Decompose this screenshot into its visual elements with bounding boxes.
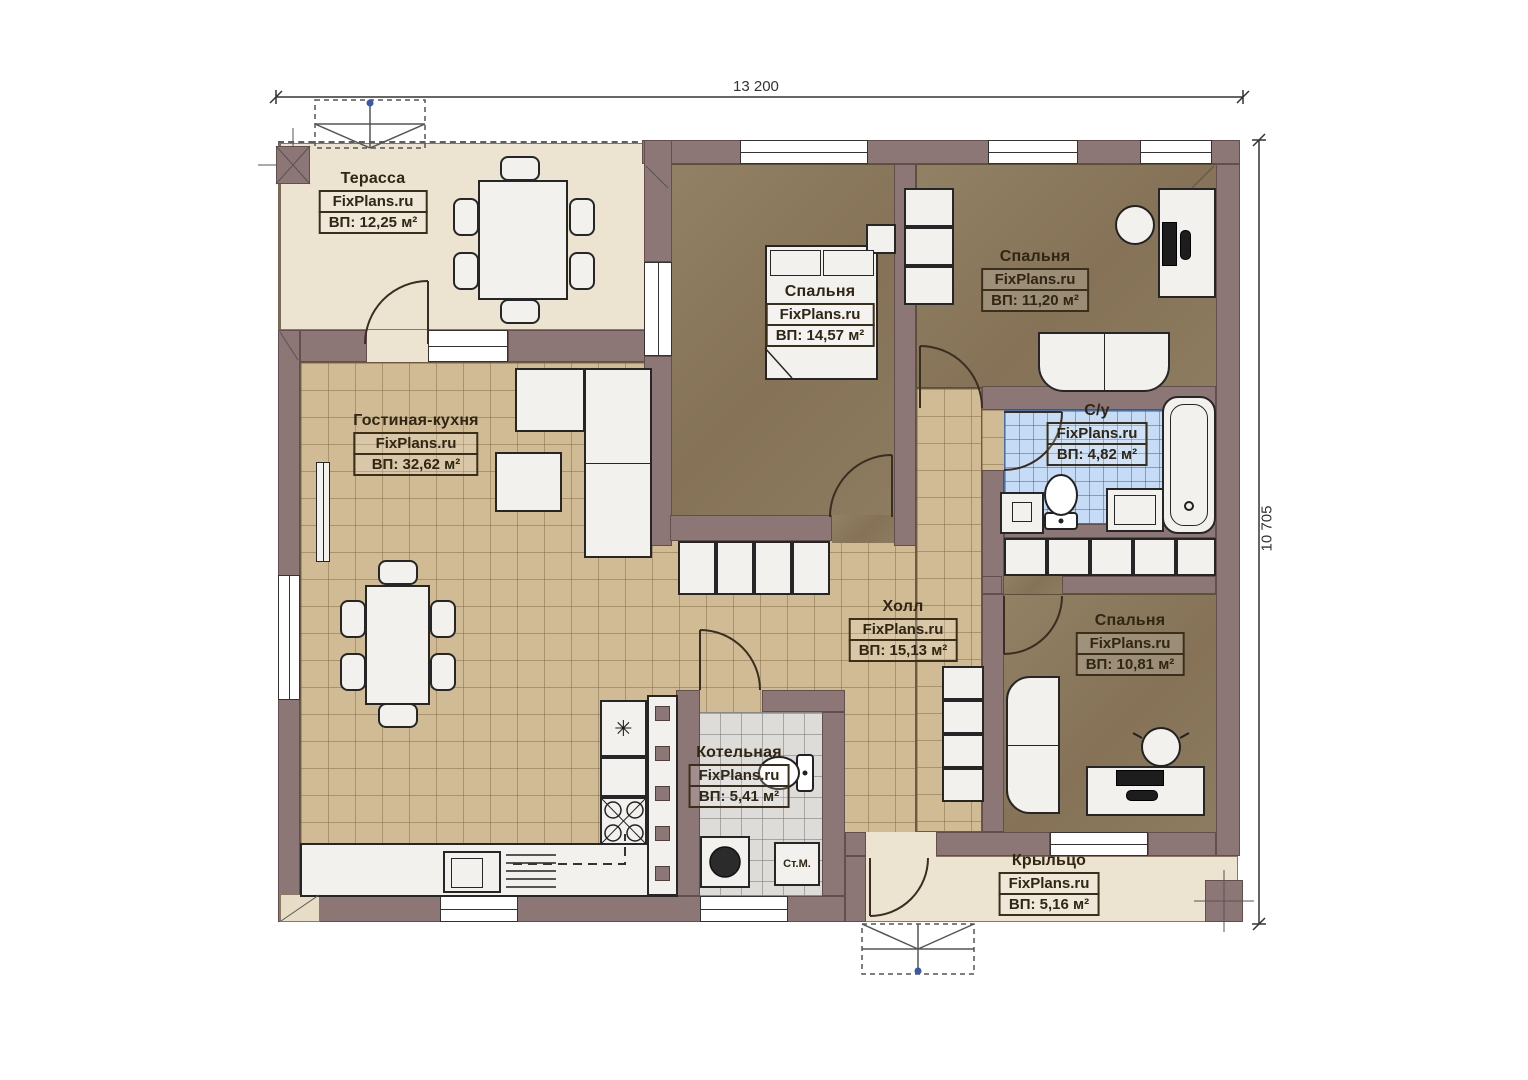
hall-closet-box [942,700,984,734]
watermark: FixPlans.ru [981,268,1089,291]
hall-closet-box [1176,538,1216,576]
computer-monitor [1162,222,1177,266]
window-bedroom2-top-1 [988,140,1078,164]
wall-bedroom3-left [982,594,1004,832]
living-chair [378,560,418,585]
radiator [316,462,330,562]
room-label-hall: Холл FixPlans.ru ВП: 15,13 м² [849,598,958,662]
porch-door-threshold [866,832,936,858]
living-chair [430,653,456,691]
fridge: ✳ [600,700,647,757]
wall-boiler-top [762,690,845,712]
drawer-front [655,826,670,841]
sofa-cushion-line [1008,745,1058,746]
living-chair [340,600,366,638]
corner-sofa-vertical [584,368,652,558]
kitchen-sink-bowl [451,858,483,888]
room-area: ВП: 11,20 м² [981,289,1089,312]
room-area: ВП: 14,57 м² [766,324,875,347]
corner-pillar-top-left [276,146,310,184]
watermark: FixPlans.ru [1047,422,1148,445]
living-chair [430,600,456,638]
window-terrace-glazing [428,330,508,362]
room-label-bathroom: С/у FixPlans.ru ВП: 4,82 м² [1047,402,1148,466]
wall-porch-corner [845,856,866,922]
washing-machine: Ст.М. [774,842,820,886]
washing-machine-label: Ст.М. [783,858,811,870]
bed-pillow [823,250,874,276]
hall-closet-box [678,541,716,595]
keyboard [1126,790,1158,801]
room-label-bedroom2: Спальня FixPlans.ru ВП: 11,20 м² [981,248,1089,312]
bathtub-inner [1170,404,1208,526]
wall-bedroom3-top-b [1062,576,1216,594]
room-area: ВП: 15,13 м² [849,639,958,662]
living-chair [340,653,366,691]
room-label-bedroom1: Спальня FixPlans.ru ВП: 14,57 м² [766,283,875,347]
roof-vent-lines-porch [862,924,974,974]
room-area: ВП: 5,41 м² [689,785,790,808]
corner-pilaster-bottom-left [280,894,320,922]
bedroom1-door-threshold [832,515,894,543]
room-area: ВП: 10,81 м² [1076,653,1185,676]
wall-right [1216,164,1240,856]
sofa-bedroom3 [1006,676,1060,814]
room-label-porch: Крыльцо FixPlans.ru ВП: 5,16 м² [999,852,1100,916]
watermark: FixPlans.ru [319,190,428,213]
wall-terrace-bedroom1-top [644,140,672,262]
terrace-chair [500,156,540,181]
room-name: Котельная [689,744,790,762]
room-name: Спальня [1076,612,1185,630]
room-area: ВП: 5,16 м² [999,893,1100,916]
wardrobe-box [904,188,954,227]
watermark: FixPlans.ru [849,618,958,641]
wardrobe-box [904,266,954,305]
room-area: ВП: 12,25 м² [319,211,428,234]
window-boiler-bottom [700,896,788,922]
room-name: Терасса [319,170,428,188]
room-name: Крыльцо [999,852,1100,870]
bed-pillow [770,250,821,276]
drawer-front [655,786,670,801]
bathroom-cabinet-inner [1012,502,1032,522]
watermark: FixPlans.ru [1076,632,1185,655]
room-label-living-kitchen: Гостиная-кухня FixPlans.ru ВП: 32,62 м² [353,412,478,476]
floor-plan: ✳ Ст.М. [0,0,1528,1080]
hall-closet-box [754,541,792,595]
terrace-chair [453,252,479,290]
roof-vent-dot-porch [915,968,922,975]
window-bedroom1-terrace [644,262,672,356]
computer-monitor [1116,770,1164,786]
drawer-front [655,706,670,721]
watermark: FixPlans.ru [689,764,790,787]
dimension-width-label: 13 200 [733,78,779,95]
bedroom3-door-threshold [1002,576,1062,594]
room-label-bedroom3: Спальня FixPlans.ru ВП: 10,81 м² [1076,612,1185,676]
wall-bedroom3-top-a [982,576,1002,594]
living-dining-table [365,585,430,705]
room-label-terrace: Терасса FixPlans.ru ВП: 12,25 м² [319,170,428,234]
room-name: С/у [1047,402,1148,420]
room-area: ВП: 32,62 м² [353,453,478,476]
wall-porch-top-a [845,832,866,856]
room-name: Спальня [766,283,875,301]
window-kitchen-bottom [440,896,518,922]
keyboard [1180,230,1191,260]
window-living-left [278,575,300,700]
terrace-chair [569,198,595,236]
room-label-boiler: Котельная FixPlans.ru ВП: 5,41 м² [689,744,790,808]
sofa-bedroom2 [1038,332,1170,392]
living-chair [378,703,418,728]
window-bedroom1-top [740,140,868,164]
terrace-chair [500,299,540,324]
wall-porch-top-c [1148,832,1216,856]
stove [600,797,647,845]
watermark: FixPlans.ru [999,872,1100,895]
sofa-cushion-line [1104,334,1105,390]
porch-pillar [1205,880,1243,922]
bathroom-sink-bowl [1114,495,1156,525]
watermark: FixPlans.ru [766,303,875,326]
terrace-door-threshold [367,330,428,362]
window-bedroom2-top-2 [1140,140,1212,164]
wall-boiler-right [822,712,845,896]
boiler-unit [700,836,750,888]
hall-closet-box [792,541,830,595]
terrace-chair [569,252,595,290]
watermark: FixPlans.ru [353,432,478,455]
dimension-height-label: 10 705 [1258,506,1275,552]
hall-closet-box [942,768,984,802]
coffee-table [495,452,562,512]
room-name: Холл [849,598,958,616]
radiator-line [323,463,324,561]
kitchen-cabinet [600,757,647,797]
corner-sofa-horizontal [515,368,585,432]
hall-closet-box [942,734,984,768]
wall-terrace-living-a [300,330,367,362]
hall-closet-box [1004,538,1047,576]
wall-bedroom1-bottom [670,515,832,541]
hall-closet-box [1047,538,1090,576]
roof-vent-symbol-porch [862,924,974,974]
terrace-chair [453,198,479,236]
drawer-front [655,866,670,881]
drawer-front [655,746,670,761]
room-name: Гостиная-кухня [353,412,478,430]
room-name: Спальня [981,248,1089,266]
hall-closet-box [1133,538,1176,576]
wardrobe-box [904,227,954,266]
sofa-cushion-line [586,463,650,464]
hall-closet-box [716,541,754,595]
terrace-open-edge [278,141,648,143]
hall-closet-box [942,666,984,700]
hall-closet-box [1090,538,1133,576]
bathroom-door-threshold [982,410,1004,470]
wall-terrace-living-b [508,330,648,362]
terrace-dining-table [478,180,568,300]
roof-vent-dot-top [367,100,374,107]
room-area: ВП: 4,82 м² [1047,443,1148,466]
